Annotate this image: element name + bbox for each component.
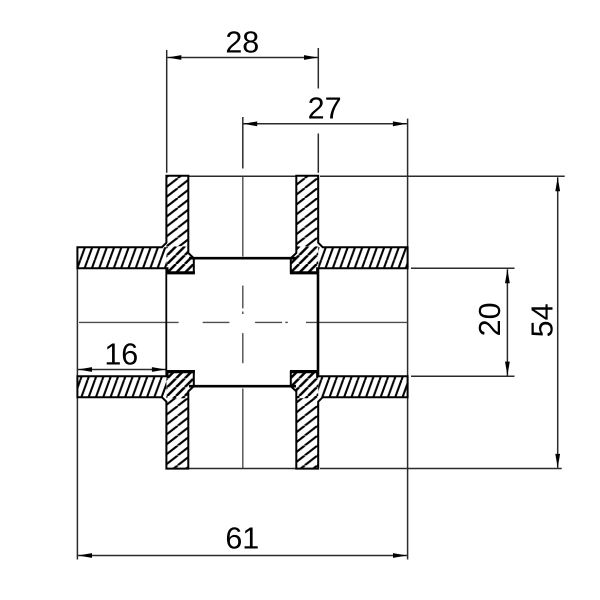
svg-text:54: 54: [525, 303, 559, 337]
svg-text:27: 27: [308, 92, 342, 126]
svg-text:16: 16: [104, 337, 138, 371]
svg-text:20: 20: [473, 302, 507, 336]
svg-text:61: 61: [225, 522, 259, 556]
svg-text:28: 28: [225, 26, 259, 60]
